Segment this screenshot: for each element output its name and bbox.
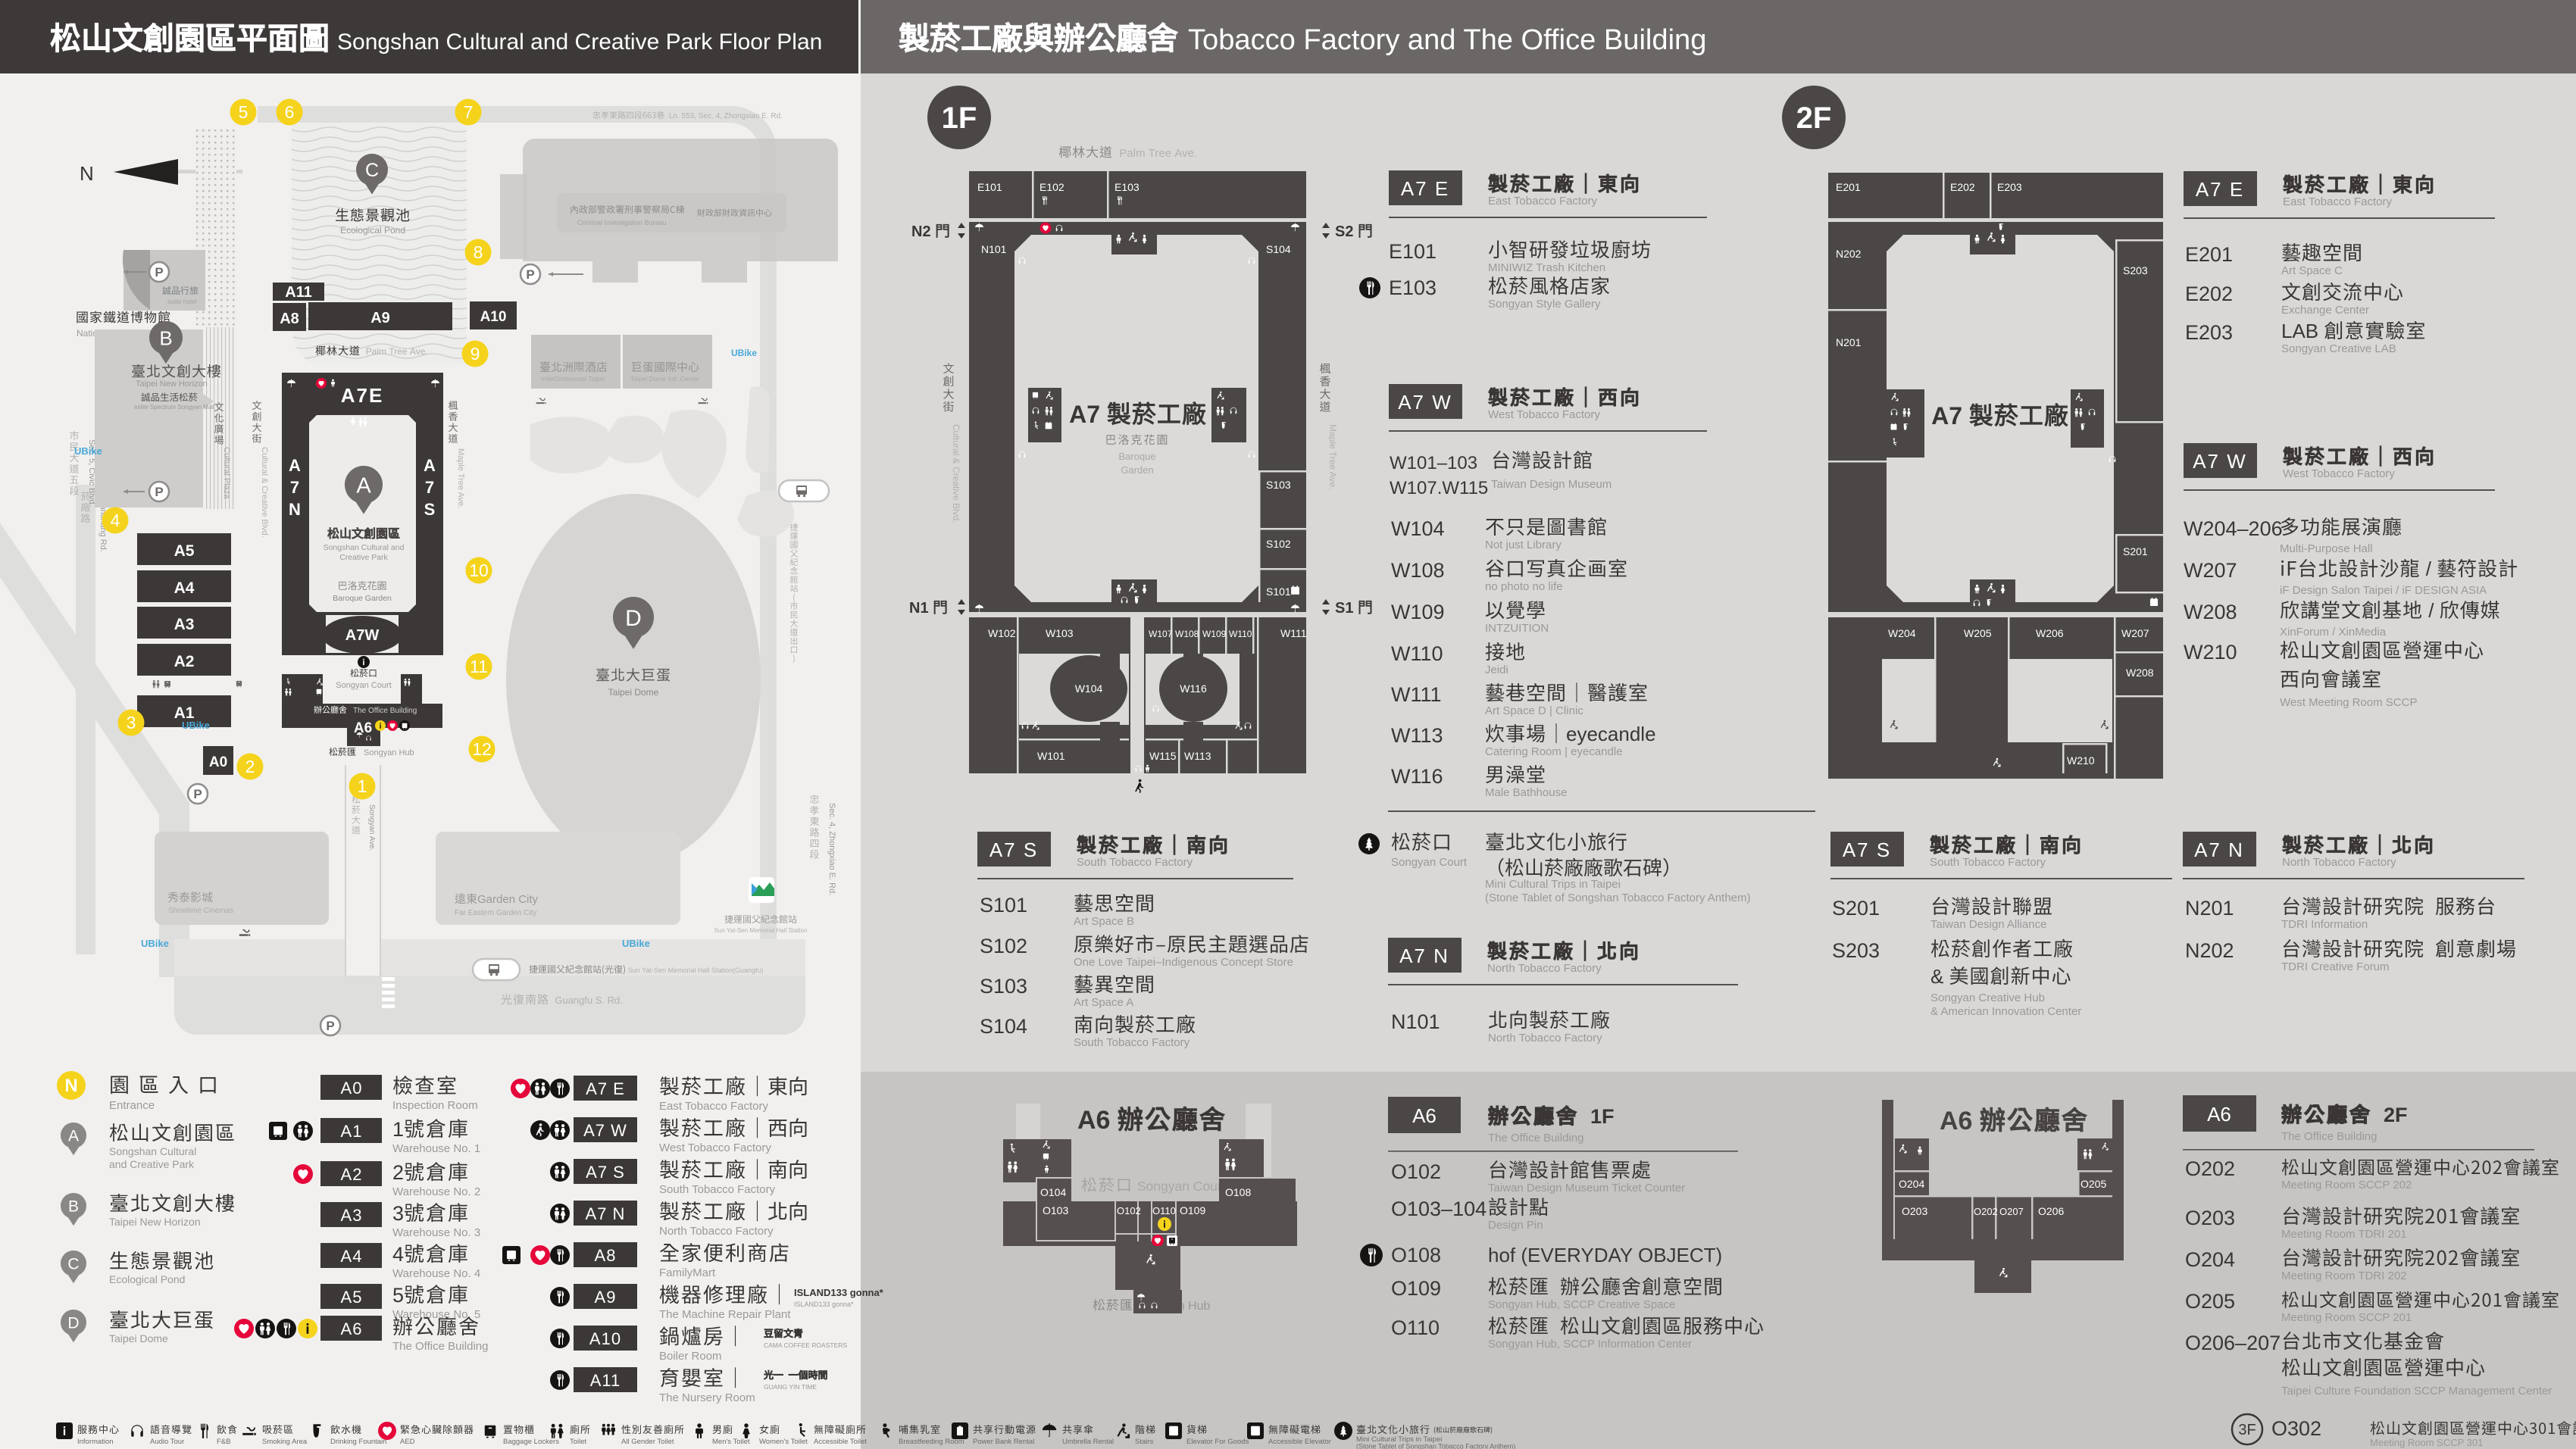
- svg-text:Cultural & Creative Blvd.: Cultural & Creative Blvd.: [260, 447, 269, 538]
- svg-text:W104: W104: [1391, 517, 1445, 540]
- svg-text:Warehouse No. 4: Warehouse No. 4: [392, 1267, 480, 1280]
- svg-text:A0: A0: [209, 754, 227, 770]
- svg-text:Songyan Court: Songyan Court: [1391, 856, 1468, 869]
- svg-text:Sun Yat-Sen Memorial Hall Stat: Sun Yat-Sen Memorial Hall Station: [714, 927, 808, 934]
- svg-text:N201: N201: [1836, 336, 1862, 348]
- svg-text:South Tobacco Factory: South Tobacco Factory: [1077, 856, 1193, 869]
- svg-text:W104: W104: [1075, 682, 1103, 695]
- svg-text:Ln. 553, Sec. 4, Zhongxiao E.: Ln. 553, Sec. 4, Zhongxiao E. Rd.: [664, 112, 783, 120]
- svg-text:12: 12: [472, 739, 492, 759]
- svg-text:A6: A6: [1940, 1107, 1980, 1135]
- svg-text:O108: O108: [1225, 1186, 1251, 1198]
- svg-text:3F: 3F: [2238, 1422, 2256, 1438]
- svg-text:ISLAND133 gonna*: ISLAND133 gonna*: [794, 1287, 884, 1298]
- svg-text:S103: S103: [980, 975, 1027, 998]
- svg-text:A5: A5: [174, 542, 195, 560]
- svg-text:Ecological Pond: Ecological Pond: [109, 1273, 185, 1285]
- svg-text:A8: A8: [595, 1246, 617, 1265]
- svg-text:TDRI Information: TDRI Information: [2281, 918, 2368, 931]
- svg-text:Toilet: Toilet: [570, 1438, 587, 1446]
- svg-text:N: N: [80, 162, 94, 185]
- svg-text:Taipei New Horizon: Taipei New Horizon: [109, 1216, 201, 1228]
- svg-text:W111: W111: [1391, 683, 1442, 706]
- svg-text:Art Space A: Art Space A: [1074, 996, 1133, 1009]
- svg-text:Warehouse No. 3: Warehouse No. 3: [392, 1226, 480, 1239]
- svg-text:West Tobacco Factory: West Tobacco Factory: [2283, 467, 2395, 480]
- svg-text:A: A: [356, 473, 371, 498]
- svg-text:eyecandle: eyecandle: [1566, 723, 1656, 745]
- svg-text:/: /: [2423, 599, 2440, 622]
- svg-text:A4: A4: [174, 579, 195, 597]
- svg-text:West Meeting Room SCCP: West Meeting Room SCCP: [2280, 696, 2417, 709]
- svg-text:E101: E101: [1389, 240, 1436, 263]
- svg-text:O104: O104: [1040, 1186, 1066, 1198]
- svg-text:E202: E202: [1950, 181, 1975, 193]
- svg-text:W103: W103: [1046, 627, 1074, 639]
- svg-text:XinForum / XinMedia: XinForum / XinMedia: [2280, 626, 2387, 639]
- svg-text:E201: E201: [2185, 243, 2233, 266]
- svg-text:W210: W210: [2184, 641, 2237, 664]
- svg-text:2F: 2F: [2372, 1104, 2408, 1126]
- svg-text:Elevator For Goods: Elevator For Goods: [1186, 1438, 1249, 1446]
- svg-text:7: 7: [464, 102, 474, 122]
- svg-text:9: 9: [470, 344, 480, 364]
- svg-text:N: N: [64, 1076, 77, 1096]
- svg-text:W113: W113: [1184, 750, 1211, 762]
- svg-text:Multi-Purpose Hall: Multi-Purpose Hall: [2280, 542, 2373, 555]
- svg-text:and Creative Park: and Creative Park: [109, 1158, 195, 1170]
- svg-text:E101: E101: [977, 181, 1002, 193]
- svg-text:Far Eastern Garden City: Far Eastern Garden City: [455, 909, 536, 917]
- svg-text:E103: E103: [1389, 276, 1436, 299]
- svg-text:S103: S103: [1266, 479, 1291, 491]
- svg-text:Taiwan Design Museum Ticket Co: Taiwan Design Museum Ticket Counter: [1488, 1182, 1685, 1194]
- svg-text:Ecological Pond: Ecological Pond: [340, 225, 405, 236]
- svg-text:O205: O205: [2080, 1178, 2106, 1190]
- svg-text:5: 5: [239, 102, 249, 122]
- svg-text:East Tobacco Factory: East Tobacco Factory: [1488, 195, 1597, 208]
- svg-text:2: 2: [392, 1161, 404, 1184]
- svg-text:N2: N2: [911, 223, 935, 240]
- svg-text:Tobacco Factory and The Office: Tobacco Factory and The Office Building: [1188, 24, 1706, 56]
- svg-text:S201: S201: [2123, 545, 2148, 557]
- svg-text:Meeting Room SCCP 301: Meeting Room SCCP 301: [2370, 1437, 2483, 1448]
- svg-text:A0: A0: [341, 1079, 363, 1098]
- svg-text:A2: A2: [341, 1165, 363, 1184]
- svg-text:UBike: UBike: [622, 938, 650, 949]
- svg-text:FamilyMart: FamilyMart: [659, 1266, 716, 1279]
- svg-text:UBike: UBike: [74, 445, 102, 457]
- svg-text:(Stone Tablet of Songshan Toba: (Stone Tablet of Songshan Tobacco Factor…: [1485, 892, 1751, 904]
- svg-text:6: 6: [285, 102, 295, 122]
- svg-text:1F: 1F: [942, 101, 977, 135]
- svg-text:Jeidi: Jeidi: [1485, 664, 1508, 676]
- svg-text:A7 E: A7 E: [586, 1079, 625, 1098]
- svg-text:Songyan Hub, SCCP Information: Songyan Hub, SCCP Information Center: [1488, 1338, 1692, 1351]
- svg-text:hof (EVERYDAY OBJECT): hof (EVERYDAY OBJECT): [1488, 1244, 1722, 1266]
- svg-text:A7 E: A7 E: [1401, 177, 1449, 200]
- svg-text:A6: A6: [2207, 1103, 2231, 1126]
- svg-text:Audio Tour: Audio Tour: [150, 1438, 184, 1446]
- svg-text:W204: W204: [1888, 627, 1916, 639]
- svg-text:A6: A6: [1077, 1106, 1118, 1135]
- svg-text:S201: S201: [1832, 897, 1880, 920]
- svg-text:W101–103: W101–103: [1390, 453, 1477, 473]
- svg-text:W102: W102: [988, 627, 1016, 639]
- svg-text:A11: A11: [590, 1371, 621, 1390]
- svg-text:O203: O203: [2185, 1207, 2235, 1229]
- svg-text:One Love Taipei–Indigenous Con: One Love Taipei–Indigenous Concept Store: [1074, 956, 1293, 969]
- svg-text:O103: O103: [1043, 1204, 1068, 1216]
- svg-text:Creative Park: Creative Park: [339, 553, 388, 562]
- svg-text:North Tobacco Factory: North Tobacco Factory: [1488, 1032, 1602, 1045]
- svg-text:W108: W108: [1391, 559, 1445, 582]
- svg-text:Entrance: Entrance: [109, 1099, 155, 1112]
- svg-text:S2: S2: [1335, 223, 1358, 240]
- svg-text:Palm Tree Ave.: Palm Tree Ave.: [1113, 147, 1197, 160]
- svg-text:Art Space C: Art Space C: [2281, 264, 2343, 277]
- svg-text:P: P: [155, 485, 163, 499]
- svg-text:(Stone Tablet of Songshan Toba: (Stone Tablet of Songshan Tobacco Factor…: [1356, 1443, 1515, 1449]
- svg-text:A7 W: A7 W: [1398, 391, 1452, 414]
- svg-text:Art Space B: Art Space B: [1074, 915, 1134, 928]
- svg-text:W110: W110: [1229, 629, 1252, 639]
- svg-text:N101: N101: [1391, 1010, 1440, 1033]
- svg-text:W109: W109: [1202, 629, 1227, 639]
- svg-text:All Gender Toilet: All Gender Toilet: [621, 1438, 674, 1446]
- svg-text:Baroque Garden: Baroque Garden: [333, 594, 392, 603]
- svg-text:Maple Tree Ave.: Maple Tree Ave.: [456, 448, 465, 508]
- svg-text:8: 8: [474, 242, 483, 262]
- svg-text:N202: N202: [2185, 939, 2234, 962]
- svg-text:Songshan Cultural and: Songshan Cultural and: [324, 543, 405, 552]
- svg-text:Cultural & Creative Blvd.: Cultural & Creative Blvd.: [951, 424, 961, 523]
- svg-text:W116: W116: [1180, 682, 1207, 695]
- svg-text:A: A: [289, 456, 301, 475]
- svg-text:4: 4: [111, 511, 120, 530]
- svg-text:W208: W208: [2184, 601, 2237, 623]
- svg-text:Drinking Fountain: Drinking Fountain: [330, 1438, 386, 1446]
- svg-text:UBike: UBike: [182, 720, 210, 731]
- svg-text:2: 2: [245, 757, 255, 776]
- svg-text:South Tobacco Factory: South Tobacco Factory: [659, 1183, 776, 1196]
- svg-text:P: P: [526, 267, 534, 282]
- svg-text:7: 7: [290, 478, 299, 497]
- svg-text:West Tobacco Factory: West Tobacco Factory: [659, 1141, 771, 1154]
- svg-text:W109: W109: [1391, 601, 1445, 623]
- svg-text:Songyan Court: Songyan Court: [336, 681, 391, 690]
- svg-text:Inspection Room: Inspection Room: [392, 1099, 478, 1112]
- svg-text:W210: W210: [2067, 754, 2095, 767]
- svg-text:O109: O109: [1180, 1204, 1205, 1216]
- svg-text:A3: A3: [341, 1206, 363, 1225]
- svg-text:W107.W115: W107.W115: [1390, 478, 1488, 498]
- svg-text:Meeting Room SCCP 201: Meeting Room SCCP 201: [2281, 1311, 2412, 1324]
- svg-text:A7 W: A7 W: [2193, 450, 2247, 473]
- svg-text:E203: E203: [1997, 181, 2022, 193]
- svg-text:1: 1: [392, 1118, 404, 1141]
- svg-text:S203: S203: [1832, 939, 1880, 962]
- svg-text:Women's Toilet: Women's Toilet: [759, 1438, 808, 1446]
- svg-text:O110: O110: [1152, 1205, 1176, 1216]
- svg-text:CAMA COFFEE ROASTERS: CAMA COFFEE ROASTERS: [764, 1341, 847, 1349]
- svg-text:S101: S101: [1266, 586, 1291, 598]
- svg-text:A: A: [68, 1128, 79, 1145]
- svg-text:Taipei Dome: Taipei Dome: [109, 1332, 168, 1344]
- svg-text:10: 10: [469, 561, 489, 580]
- svg-text:UBike: UBike: [731, 348, 757, 358]
- svg-text:E201: E201: [1836, 181, 1861, 193]
- svg-text:3: 3: [392, 1202, 404, 1225]
- svg-text:Criminal Investigation Bureau: Criminal Investigation Bureau: [577, 219, 667, 226]
- svg-text:A3: A3: [174, 616, 195, 633]
- svg-text:O110: O110: [1391, 1316, 1440, 1339]
- svg-text:Garden City: Garden City: [477, 893, 539, 906]
- svg-text:The Nursery Room: The Nursery Room: [659, 1391, 755, 1404]
- svg-text:Songyan Ave.: Songyan Ave.: [367, 804, 376, 851]
- svg-text:Design Pin: Design Pin: [1488, 1219, 1543, 1232]
- svg-text:A7W: A7W: [345, 627, 380, 644]
- svg-text:Songyan Creative LAB: Songyan Creative LAB: [2281, 342, 2396, 355]
- svg-text:InterContinental Taipei: InterContinental Taipei: [541, 375, 605, 383]
- svg-text:S1: S1: [1335, 600, 1358, 617]
- svg-text:North Tobacco Factory: North Tobacco Factory: [1487, 962, 1602, 975]
- svg-text:A7 E: A7 E: [2196, 178, 2244, 201]
- svg-text:O108: O108: [1391, 1244, 1441, 1266]
- svg-text:A1: A1: [341, 1122, 363, 1141]
- svg-text:C: C: [67, 1256, 79, 1273]
- svg-text:Songshan Cultural and Creative: Songshan Cultural and Creative Park Floo…: [337, 30, 822, 55]
- svg-text:Taipei Dome: Taipei Dome: [608, 687, 659, 698]
- svg-text:S104: S104: [1266, 243, 1291, 255]
- svg-text:Accessible Toilet: Accessible Toilet: [814, 1438, 867, 1446]
- svg-text:Songyan Hub, SCCP Creative Spa: Songyan Hub, SCCP Creative Space: [1488, 1298, 1675, 1311]
- svg-text:The Office Building: The Office Building: [353, 707, 417, 715]
- svg-text:Songyan Style Gallery: Songyan Style Gallery: [1488, 298, 1601, 311]
- svg-text:Songyan Court: Songyan Court: [1133, 1179, 1226, 1194]
- svg-text:O203: O203: [1902, 1205, 1927, 1217]
- svg-text:O204: O204: [2185, 1248, 2235, 1271]
- svg-text:S104: S104: [980, 1015, 1027, 1038]
- svg-text:ISLAND133 gonna*: ISLAND133 gonna*: [794, 1301, 854, 1308]
- svg-text:A9: A9: [370, 310, 390, 326]
- svg-text:Guangfu S. Rd.: Guangfu S. Rd.: [549, 995, 623, 1006]
- svg-text:Garden: Garden: [1121, 464, 1153, 476]
- svg-text:Umbrella Rental: Umbrella Rental: [1062, 1438, 1114, 1446]
- svg-text:Baggage Lockers: Baggage Lockers: [503, 1438, 559, 1446]
- svg-text:North Tobacco Factory: North Tobacco Factory: [2282, 856, 2396, 869]
- svg-text:O202: O202: [2185, 1157, 2235, 1180]
- svg-text:A9: A9: [595, 1288, 617, 1307]
- svg-text:A5: A5: [341, 1288, 363, 1307]
- svg-text:Songyan Creative Hub: Songyan Creative Hub: [1930, 992, 2045, 1004]
- svg-text:A2: A2: [174, 653, 195, 670]
- svg-text:A6: A6: [341, 1319, 363, 1338]
- svg-text:Smoking Area: Smoking Area: [262, 1438, 308, 1446]
- svg-text:iF Design Salon Taipei / iF DE: iF Design Salon Taipei / iF DESIGN ASIA: [2280, 584, 2487, 597]
- svg-text:LAB: LAB: [2281, 320, 2324, 342]
- svg-text:Meeting Room SCCP 202: Meeting Room SCCP 202: [2281, 1179, 2412, 1191]
- svg-text:O109: O109: [1391, 1277, 1441, 1300]
- svg-text:1: 1: [358, 776, 367, 796]
- svg-text:O102: O102: [1391, 1160, 1441, 1183]
- svg-text:N: N: [289, 500, 301, 519]
- svg-text:Mini Cultural Trips in Taipei: Mini Cultural Trips in Taipei: [1485, 878, 1621, 891]
- svg-text:W107: W107: [1149, 629, 1173, 639]
- svg-text:W108: W108: [1175, 629, 1199, 639]
- svg-text:P: P: [155, 265, 163, 279]
- svg-text:A: A: [424, 456, 436, 475]
- svg-text:Not just Library: Not just Library: [1485, 539, 1562, 551]
- svg-text:W101: W101: [1037, 750, 1065, 762]
- svg-text:W205: W205: [1964, 627, 1992, 639]
- svg-text:W207: W207: [2121, 627, 2149, 639]
- svg-text:F&B: F&B: [217, 1438, 230, 1446]
- svg-text:Songshan Cultural: Songshan Cultural: [109, 1145, 196, 1157]
- svg-text:Cultural Plaza: Cultural Plaza: [222, 447, 231, 499]
- svg-text:W111: W111: [1280, 627, 1307, 639]
- svg-text:A7 W: A7 W: [583, 1121, 627, 1140]
- svg-text:Baroque: Baroque: [1118, 451, 1155, 462]
- svg-text:Exchange Center: Exchange Center: [2281, 304, 2369, 317]
- svg-text:S101: S101: [980, 894, 1027, 917]
- svg-text:E202: E202: [2185, 283, 2233, 305]
- svg-text:O206: O206: [2038, 1205, 2064, 1217]
- svg-text:7: 7: [425, 478, 434, 497]
- svg-text:P: P: [326, 1019, 334, 1033]
- svg-text:O103–104: O103–104: [1391, 1198, 1487, 1220]
- svg-text:O207: O207: [1999, 1206, 2024, 1217]
- svg-text:A7: A7: [1931, 402, 1969, 429]
- svg-text:O206–207: O206–207: [2185, 1332, 2281, 1354]
- svg-text:S203: S203: [2123, 264, 2148, 276]
- svg-text:Warehouse No. 2: Warehouse No. 2: [392, 1185, 480, 1198]
- svg-text:O202: O202: [1974, 1206, 1998, 1217]
- svg-text:O205: O205: [2185, 1290, 2235, 1313]
- svg-text:A7 N: A7 N: [586, 1204, 626, 1223]
- svg-text:Meeting Room TDRI 201: Meeting Room TDRI 201: [2281, 1228, 2407, 1241]
- svg-text:The Machine Repair Plant: The Machine Repair Plant: [659, 1308, 791, 1321]
- svg-text:& American Innovation Center: & American Innovation Center: [1930, 1005, 2081, 1018]
- svg-text:Warehouse No. 1: Warehouse No. 1: [392, 1142, 480, 1155]
- svg-text:Taipei New Horizon: Taipei New Horizon: [136, 379, 208, 389]
- svg-text:E103: E103: [1114, 181, 1140, 193]
- svg-text:A10: A10: [589, 1329, 621, 1348]
- svg-text:West Tobacco Factory: West Tobacco Factory: [1488, 408, 1600, 421]
- svg-text:11: 11: [470, 657, 488, 676]
- svg-text:B: B: [159, 326, 172, 349]
- svg-text:A4: A4: [341, 1247, 363, 1266]
- svg-text:Taiwan Design Museum: Taiwan Design Museum: [1491, 478, 1612, 491]
- svg-text:W113: W113: [1391, 724, 1443, 747]
- svg-text:N101: N101: [981, 243, 1007, 255]
- svg-text:Accessible Elevator: Accessible Elevator: [1268, 1438, 1331, 1446]
- svg-text:Information: Information: [77, 1438, 114, 1446]
- svg-text:S: S: [424, 500, 436, 519]
- svg-text:W204–206: W204–206: [2184, 517, 2283, 540]
- svg-text:W207: W207: [2184, 559, 2237, 582]
- svg-text:Sun Yat-Sen Memorial Hall Stat: Sun Yat-Sen Memorial Hall Station(Guangf…: [626, 967, 763, 974]
- svg-text:AED: AED: [400, 1438, 415, 1446]
- svg-text:South Tobacco Factory: South Tobacco Factory: [1074, 1036, 1190, 1049]
- svg-text:N1: N1: [909, 600, 933, 617]
- svg-text:S102: S102: [980, 935, 1027, 957]
- svg-text:W206: W206: [2036, 627, 2064, 639]
- svg-text:Taipei Culture Foundation SCCP: Taipei Culture Foundation SCCP Managemen…: [2281, 1385, 2552, 1397]
- svg-text:A6: A6: [354, 720, 372, 736]
- svg-text:W116: W116: [1391, 765, 1443, 788]
- svg-text:A7E: A7E: [341, 384, 384, 407]
- svg-text:INTZUITION: INTZUITION: [1485, 622, 1549, 635]
- svg-text:The Office Building: The Office Building: [1488, 1132, 1583, 1145]
- svg-text:W115: W115: [1149, 750, 1177, 762]
- svg-text:C: C: [365, 160, 379, 181]
- svg-text:A6: A6: [1412, 1104, 1436, 1127]
- svg-text:5: 5: [392, 1284, 404, 1307]
- svg-text:D: D: [625, 606, 642, 631]
- svg-text:Showtime Cinemas: Showtime Cinemas: [168, 907, 233, 915]
- svg-text:E102: E102: [1039, 181, 1064, 193]
- svg-text:A7 S: A7 S: [989, 838, 1038, 861]
- svg-text:/: /: [2421, 557, 2437, 580]
- svg-text:The Office Building: The Office Building: [392, 1340, 488, 1353]
- svg-text:Meeting Room TDRI 202: Meeting Room TDRI 202: [2281, 1269, 2407, 1282]
- svg-text:Taiwan Design Alliance: Taiwan Design Alliance: [1930, 918, 2046, 931]
- svg-text:A7 S: A7 S: [1843, 838, 1891, 861]
- svg-text:D: D: [67, 1315, 79, 1332]
- svg-text:B: B: [68, 1198, 79, 1216]
- svg-text:2F: 2F: [1796, 101, 1832, 135]
- svg-text:Catering Room | eyecandle: Catering Room | eyecandle: [1485, 745, 1623, 758]
- svg-text:Maple Tree Ave.: Maple Tree Ave.: [1327, 424, 1338, 490]
- svg-text:A7 N: A7 N: [1399, 945, 1449, 967]
- svg-text:P: P: [193, 787, 202, 801]
- svg-text:S102: S102: [1266, 538, 1291, 550]
- svg-text:MINIWIZ Trash Kitchen: MINIWIZ Trash Kitchen: [1488, 261, 1605, 274]
- svg-text:N202: N202: [1836, 248, 1862, 260]
- svg-text:Taipei Dome Intl. Center: Taipei Dome Intl. Center: [630, 375, 699, 383]
- svg-text:W110: W110: [1391, 642, 1443, 665]
- svg-text:3: 3: [127, 713, 136, 732]
- svg-text:Palm Tree Ave.: Palm Tree Ave.: [361, 346, 428, 357]
- svg-text:1F: 1F: [1579, 1105, 1615, 1128]
- svg-text:North Tobacco Factory: North Tobacco Factory: [659, 1225, 774, 1238]
- svg-text:no photo no life: no photo no life: [1485, 580, 1563, 593]
- svg-text:O302: O302: [2271, 1417, 2321, 1440]
- svg-text:A11: A11: [285, 284, 312, 301]
- svg-text:A7 N: A7 N: [2194, 838, 2244, 861]
- svg-text:A7 S: A7 S: [586, 1163, 625, 1182]
- svg-text:&: &: [1930, 965, 1949, 988]
- svg-text:Power Bank Rental: Power Bank Rental: [973, 1438, 1034, 1446]
- svg-text:N201: N201: [2185, 897, 2234, 920]
- svg-text:Stairs: Stairs: [1135, 1438, 1154, 1446]
- svg-text:W208: W208: [2126, 667, 2154, 679]
- svg-text:Songyan Hub: Songyan Hub: [364, 748, 414, 757]
- svg-text:GUANG YIN TIME: GUANG YIN TIME: [764, 1383, 817, 1391]
- svg-text:Male Bathhouse: Male Bathhouse: [1485, 786, 1567, 799]
- svg-text:South Tobacco Factory: South Tobacco Factory: [1930, 856, 2046, 869]
- svg-text:A8: A8: [280, 311, 299, 327]
- svg-text:Sec. 4, Zhongxiao E. Rd.: Sec. 4, Zhongxiao E. Rd.: [827, 803, 836, 895]
- svg-text:Art Space D | Clinic: Art Space D | Clinic: [1485, 704, 1583, 717]
- svg-text:TDRI Creative Forum: TDRI Creative Forum: [2281, 960, 2390, 973]
- svg-text:Boiler Room: Boiler Room: [659, 1350, 722, 1363]
- svg-text:O102: O102: [1117, 1205, 1141, 1216]
- svg-text:Men's Toilet: Men's Toilet: [712, 1438, 750, 1446]
- svg-text:E203: E203: [2185, 321, 2233, 344]
- svg-text:East Tobacco Factory: East Tobacco Factory: [659, 1100, 768, 1113]
